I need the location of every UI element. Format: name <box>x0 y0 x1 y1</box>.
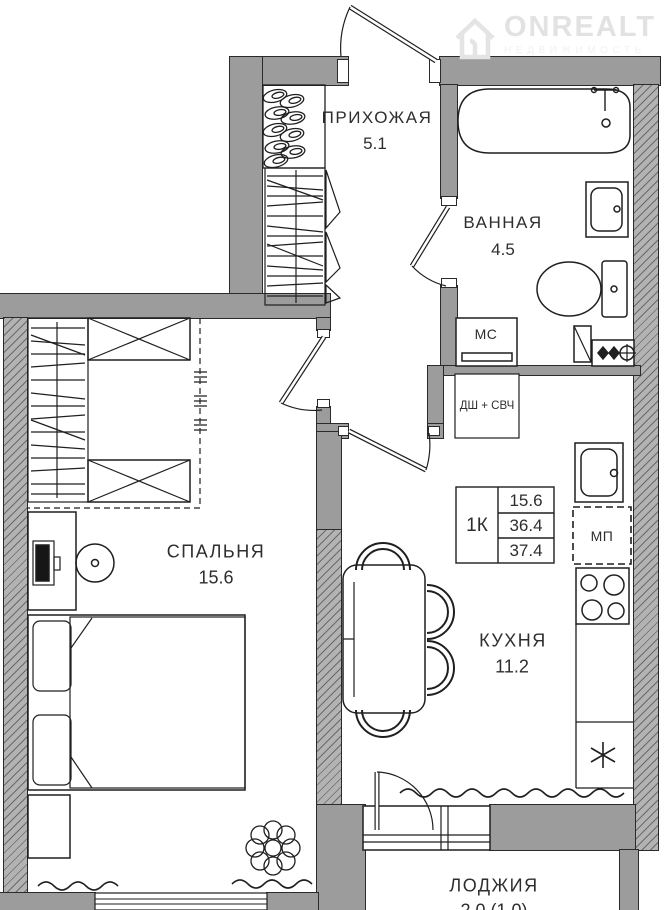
kitchen-door-jamb-left <box>338 426 349 436</box>
desk <box>28 512 76 610</box>
chair-top <box>356 543 410 570</box>
closet-dashed-outline <box>28 318 200 508</box>
wall-bathroom-left-upper <box>441 85 457 198</box>
summary-type: 1К <box>466 515 488 537</box>
entrance-door-jamb-left <box>337 59 349 83</box>
summary-row-1: 15.6 <box>509 491 542 511</box>
hallway-wardrobe <box>265 168 340 305</box>
wall-right-exterior <box>634 85 658 850</box>
bedroom-window <box>95 893 267 910</box>
wall-hallway-left <box>230 57 262 314</box>
bedroom-door-jamb-bottom <box>317 399 330 408</box>
room-area-bathroom: 4.5 <box>491 240 515 260</box>
kitchen-sink <box>575 443 623 502</box>
closet-cabinet-bottom <box>88 460 190 502</box>
bed <box>28 615 245 790</box>
nightstand <box>28 795 70 858</box>
bathtub <box>458 88 630 154</box>
shoe-rack <box>262 85 325 170</box>
brand-name: ONREALT <box>504 12 656 42</box>
wall-bedroom-bottom-left <box>0 893 95 910</box>
dishwasher-microwave-label: ДШ + СВЧ <box>460 400 515 412</box>
chair-bottom <box>356 710 410 737</box>
kitchen-door-jamb-right <box>428 426 440 436</box>
closet-cabinet-top <box>88 318 190 360</box>
stove <box>576 568 629 624</box>
plumbing-riser-symbol <box>592 340 636 366</box>
summary-row-3: 37.4 <box>509 541 542 561</box>
room-label-bedroom: СПАЛЬНЯ <box>167 542 265 563</box>
sliding-door-marks <box>194 372 207 430</box>
dining-table <box>343 565 425 713</box>
brand-tagline: НЕДВИЖИМОСТЬ <box>504 45 656 56</box>
chair-right-upper <box>427 585 454 639</box>
towel-panel <box>574 326 591 362</box>
entrance-door-jamb-right <box>429 59 441 83</box>
balcony-door-unit <box>363 772 490 850</box>
house-icon <box>452 12 498 64</box>
brand-watermark: ONREALT НЕДВИЖИМОСТЬ <box>452 12 656 64</box>
wall-kitchen-top-connector <box>428 366 443 426</box>
wall-left-exterior <box>4 318 27 893</box>
room-label-loggia: ЛОДЖИЯ <box>449 876 538 897</box>
bedroom-door-jamb-top <box>317 329 330 338</box>
fridge-asterisk <box>591 742 615 768</box>
wall-bedroom-bottom-right <box>267 893 318 910</box>
washing-machine-label: МС <box>475 326 498 342</box>
radiator-bedroom-left <box>38 882 118 890</box>
room-area-loggia: 2.0 (1.0) <box>460 901 527 910</box>
bedroom-closet-rack <box>28 318 88 502</box>
wall-bedroom-top <box>0 294 330 318</box>
appliance-niche-label: МП <box>591 528 614 544</box>
room-label-kitchen: КУХНЯ <box>479 631 547 652</box>
bathroom-door-jamb-top <box>441 196 457 206</box>
entrance-door <box>341 7 436 61</box>
bathroom-door <box>412 207 448 286</box>
wall-divider-hatched <box>317 530 341 805</box>
desk-chair <box>76 544 114 582</box>
radiator-bedroom-right <box>232 880 312 888</box>
room-area-kitchen: 11.2 <box>495 657 529 678</box>
floor-plan: ПРИХОЖАЯ 5.1 ВАННАЯ 4.5 СПАЛЬНЯ 15.6 КУХ… <box>0 0 664 910</box>
room-area-bedroom: 15.6 <box>198 568 233 589</box>
wall-loggia-right <box>620 850 638 910</box>
wall-divider-upper <box>317 432 341 530</box>
plant <box>246 821 300 875</box>
room-label-bathroom: ВАННАЯ <box>463 213 542 233</box>
bathroom-sink <box>586 182 628 237</box>
room-area-hallway: 5.1 <box>363 134 387 154</box>
radiator-kitchen <box>400 789 624 797</box>
chair-right-lower <box>427 641 454 695</box>
bathroom-door-jamb-bottom <box>441 278 457 288</box>
kitchen-door <box>349 431 430 470</box>
summary-row-2: 36.4 <box>509 516 542 536</box>
kitchen-counter <box>576 624 633 788</box>
wall-bathroom-bottom <box>428 366 640 375</box>
wall-divider-bottom-block <box>317 805 365 910</box>
room-label-hallway: ПРИХОЖАЯ <box>322 108 433 128</box>
wall-kitchen-bottom <box>490 805 635 850</box>
wall-bathroom-left-lower <box>441 286 457 375</box>
toilet <box>537 261 627 317</box>
